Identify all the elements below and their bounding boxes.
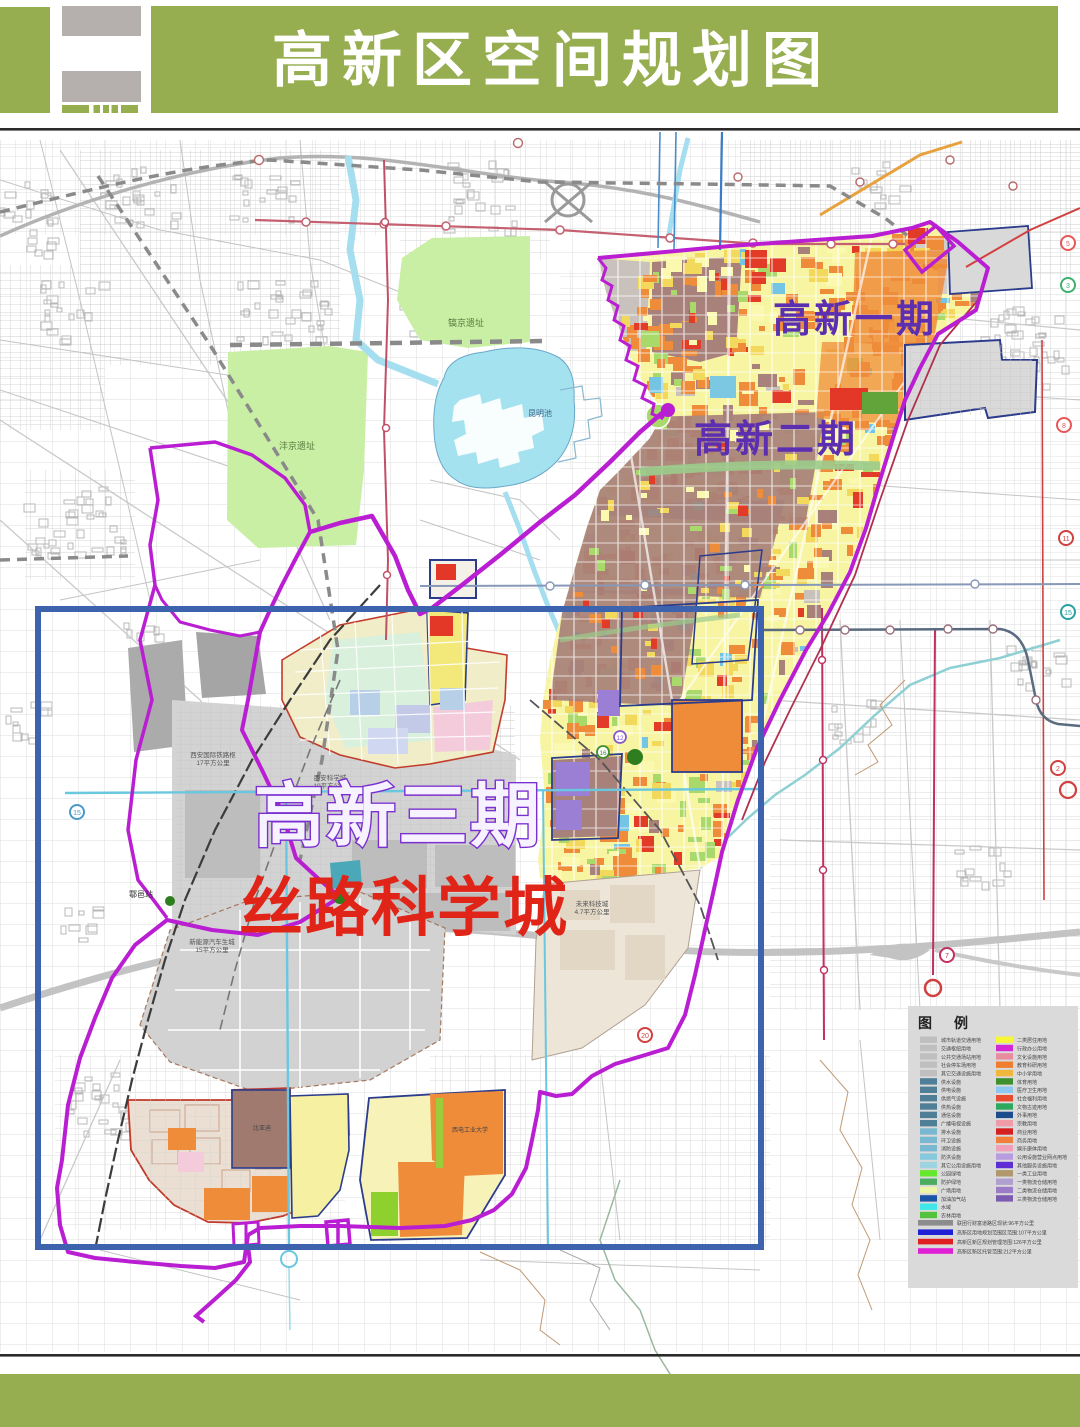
- svg-text:社会停车场用地: 社会停车场用地: [941, 1062, 976, 1069]
- svg-text:西安国际铁路枢: 西安国际铁路枢: [190, 750, 236, 759]
- svg-text:商业用地: 商业用地: [1017, 1129, 1037, 1136]
- svg-text:15: 15: [1064, 610, 1072, 617]
- svg-text:沣京遗址: 沣京遗址: [279, 440, 315, 451]
- svg-text:11: 11: [1062, 536, 1069, 543]
- svg-text:防洪设施: 防洪设施: [941, 1154, 961, 1161]
- svg-text:其它公用设施用地: 其它公用设施用地: [941, 1162, 981, 1169]
- svg-text:供热设施: 供热设施: [941, 1104, 961, 1111]
- svg-text:17平方公里: 17平方公里: [196, 758, 230, 767]
- svg-text:公用设施营业网点用地: 公用设施营业网点用地: [1017, 1154, 1067, 1161]
- svg-text:其它交通设施用地: 其它交通设施用地: [941, 1071, 981, 1078]
- svg-text:2: 2: [1056, 766, 1060, 773]
- svg-text:8: 8: [1062, 423, 1066, 430]
- svg-text:公共交通场站用地: 公共交通场站用地: [941, 1054, 981, 1061]
- svg-text:消防设施: 消防设施: [941, 1146, 961, 1153]
- svg-text:新能源汽车生城: 新能源汽车生城: [189, 937, 235, 946]
- svg-text:7: 7: [945, 953, 949, 960]
- svg-text:供水设施: 供水设施: [941, 1079, 961, 1086]
- svg-text:交通枢纽用地: 交通枢纽用地: [941, 1045, 971, 1052]
- svg-text:其他服务设施用地: 其他服务设施用地: [1017, 1162, 1057, 1169]
- svg-text:一类工业用地: 一类工业用地: [1017, 1171, 1047, 1178]
- svg-text:通信设施: 通信设施: [941, 1112, 961, 1119]
- svg-text:鄠邑站: 鄠邑站: [129, 889, 153, 899]
- svg-text:15: 15: [73, 810, 81, 817]
- svg-text:加油加气站: 加油加气站: [941, 1196, 966, 1203]
- svg-text:文化设施用地: 文化设施用地: [1017, 1054, 1047, 1061]
- svg-text:水域: 水域: [941, 1204, 951, 1211]
- svg-text:高新二期: 高新二期: [694, 419, 858, 461]
- svg-text:未来科技城: 未来科技城: [576, 899, 609, 908]
- svg-text:15平方公里: 15平方公里: [195, 945, 229, 954]
- svg-text:高新区用地规划范围区范围:107平方公里: 高新区用地规划范围区范围:107平方公里: [957, 1230, 1047, 1237]
- svg-text:广播电视设施: 广播电视设施: [941, 1121, 971, 1128]
- svg-text:高新三期: 高新三期: [254, 777, 542, 855]
- svg-text:高新区新区托管范围:212平方公里: 高新区新区托管范围:212平方公里: [957, 1248, 1032, 1255]
- svg-text:高新区空间规划图: 高新区空间规划图: [272, 27, 832, 94]
- svg-text:中小学用地: 中小学用地: [1017, 1071, 1042, 1078]
- svg-text:联团行财富道路区现状:96平方公里: 联团行财富道路区现状:96平方公里: [957, 1220, 1034, 1227]
- svg-text:医疗卫生用地: 医疗卫生用地: [1017, 1087, 1047, 1094]
- svg-text:4.7平方公里: 4.7平方公里: [574, 907, 610, 916]
- svg-text:防护绿地: 防护绿地: [941, 1179, 961, 1186]
- svg-text:文物古迹用地: 文物古迹用地: [1017, 1104, 1047, 1111]
- svg-text:二类物流仓储用地: 二类物流仓储用地: [1017, 1187, 1057, 1194]
- svg-text:丝路科学城: 丝路科学城: [239, 872, 569, 944]
- svg-text:公园绿地: 公园绿地: [941, 1171, 961, 1178]
- svg-text:娱乐康体用地: 娱乐康体用地: [1017, 1146, 1047, 1153]
- svg-text:图例: 图例: [918, 1015, 990, 1031]
- svg-text:二类居住用地: 二类居住用地: [1017, 1037, 1047, 1044]
- svg-text:16: 16: [599, 750, 607, 757]
- svg-text:供电设施: 供电设施: [941, 1087, 961, 1094]
- svg-text:西电工业大学: 西电工业大学: [452, 1126, 488, 1134]
- svg-text:商务用地: 商务用地: [1017, 1137, 1037, 1144]
- svg-text:三类物流仓储用地: 三类物流仓储用地: [1017, 1196, 1057, 1203]
- svg-text:高新区新区规划管理范围:126平方公里: 高新区新区规划管理范围:126平方公里: [957, 1239, 1042, 1246]
- svg-text:广场用地: 广场用地: [941, 1187, 961, 1194]
- svg-text:环卫设施: 环卫设施: [941, 1137, 961, 1144]
- svg-text:行政办公用地: 行政办公用地: [1017, 1045, 1047, 1052]
- svg-text:体育用地: 体育用地: [1017, 1079, 1037, 1086]
- svg-text:城市轨道交通用地: 城市轨道交通用地: [941, 1037, 981, 1044]
- svg-text:外事用地: 外事用地: [1017, 1112, 1037, 1119]
- svg-text:宗教用地: 宗教用地: [1017, 1121, 1037, 1128]
- svg-text:镐京遗址: 镐京遗址: [448, 317, 484, 328]
- svg-text:教育科研用地: 教育科研用地: [1017, 1062, 1047, 1069]
- svg-text:比亚迪: 比亚迪: [253, 1124, 271, 1132]
- svg-text:供燃气设施: 供燃气设施: [941, 1096, 966, 1103]
- svg-text:20: 20: [641, 1033, 649, 1040]
- svg-text:农林用地: 农林用地: [941, 1212, 961, 1219]
- svg-text:高新一期: 高新一期: [773, 299, 937, 341]
- svg-text:一类物流仓储用地: 一类物流仓储用地: [1017, 1179, 1057, 1186]
- svg-text:5: 5: [1066, 241, 1070, 248]
- svg-text:昆明池: 昆明池: [528, 408, 552, 418]
- svg-text:12: 12: [616, 735, 624, 742]
- svg-text:排水设施: 排水设施: [941, 1129, 961, 1136]
- svg-text:社会福利用地: 社会福利用地: [1017, 1096, 1047, 1103]
- svg-text:3: 3: [1066, 283, 1070, 290]
